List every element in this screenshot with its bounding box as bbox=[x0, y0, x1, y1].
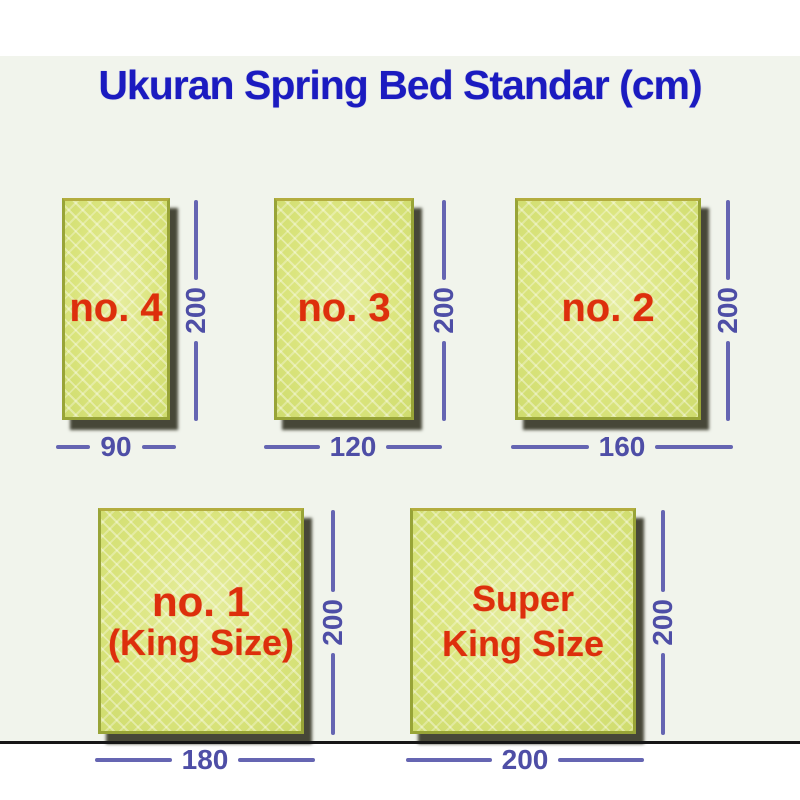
separator-line bbox=[0, 741, 800, 744]
dimension-line bbox=[655, 445, 733, 449]
mattress-super-king-label: Super King Size bbox=[442, 576, 604, 666]
height-dimension-no3: 200 bbox=[429, 200, 459, 421]
width-value: 200 bbox=[502, 744, 549, 776]
bed-name-line2: (King Size) bbox=[108, 624, 294, 663]
height-value: 200 bbox=[647, 592, 679, 653]
mattress-no2: no. 2 bbox=[515, 198, 701, 420]
dimension-line bbox=[406, 758, 492, 762]
dimension-line bbox=[726, 341, 730, 421]
dimension-line bbox=[511, 445, 589, 449]
width-dimension-no3: 120 bbox=[264, 432, 442, 462]
diagram-background: Ukuran Spring Bed Standar (cm) no. 4 200… bbox=[0, 56, 800, 741]
page-title: Ukuran Spring Bed Standar (cm) bbox=[0, 62, 800, 109]
bed-name: no. 2 bbox=[561, 287, 654, 330]
dimension-line bbox=[331, 653, 335, 735]
dimension-line bbox=[264, 445, 320, 449]
mattress-no1-king: no. 1 (King Size) bbox=[98, 508, 304, 734]
height-dimension-no4: 200 bbox=[181, 200, 211, 421]
mattress-no1-label: no. 1 (King Size) bbox=[108, 579, 294, 663]
width-dimension-no4: 90 bbox=[56, 432, 176, 462]
height-dimension-no1: 200 bbox=[318, 510, 348, 735]
mattress-no3: no. 3 bbox=[274, 198, 414, 420]
width-value: 90 bbox=[100, 431, 131, 463]
height-value: 200 bbox=[317, 592, 349, 653]
dimension-line bbox=[331, 510, 335, 592]
width-value: 120 bbox=[330, 431, 377, 463]
mattress-no4-label: no. 4 bbox=[69, 287, 162, 330]
bed-name: no. 3 bbox=[297, 287, 390, 330]
mattress-super-king: Super King Size bbox=[410, 508, 636, 734]
dimension-line bbox=[386, 445, 442, 449]
dimension-line bbox=[238, 758, 315, 762]
bed-name: no. 4 bbox=[69, 287, 162, 330]
dimension-line bbox=[726, 200, 730, 280]
bed-name-line2: King Size bbox=[442, 621, 604, 666]
bed-name: no. 1 bbox=[108, 579, 294, 624]
dimension-line bbox=[661, 510, 665, 592]
width-dimension-super-king: 200 bbox=[406, 745, 644, 775]
height-value: 200 bbox=[180, 280, 212, 341]
height-dimension-super-king: 200 bbox=[648, 510, 678, 735]
bed-name: Super bbox=[442, 576, 604, 621]
dimension-line bbox=[558, 758, 644, 762]
height-dimension-no2: 200 bbox=[713, 200, 743, 421]
dimension-line bbox=[194, 200, 198, 280]
width-value: 160 bbox=[599, 431, 646, 463]
dimension-line bbox=[142, 445, 176, 449]
mattress-no2-label: no. 2 bbox=[561, 287, 654, 330]
height-value: 200 bbox=[428, 280, 460, 341]
width-dimension-no2: 160 bbox=[511, 432, 733, 462]
dimension-line bbox=[661, 653, 665, 735]
dimension-line bbox=[442, 200, 446, 280]
mattress-no3-label: no. 3 bbox=[297, 287, 390, 330]
dimension-line bbox=[95, 758, 172, 762]
width-value: 180 bbox=[182, 744, 229, 776]
dimension-line bbox=[194, 341, 198, 421]
mattress-no4: no. 4 bbox=[62, 198, 170, 420]
dimension-line bbox=[56, 445, 90, 449]
width-dimension-no1: 180 bbox=[95, 745, 315, 775]
spring-bed-size-infographic: Ukuran Spring Bed Standar (cm) no. 4 200… bbox=[0, 0, 800, 800]
height-value: 200 bbox=[712, 280, 744, 341]
dimension-line bbox=[442, 341, 446, 421]
